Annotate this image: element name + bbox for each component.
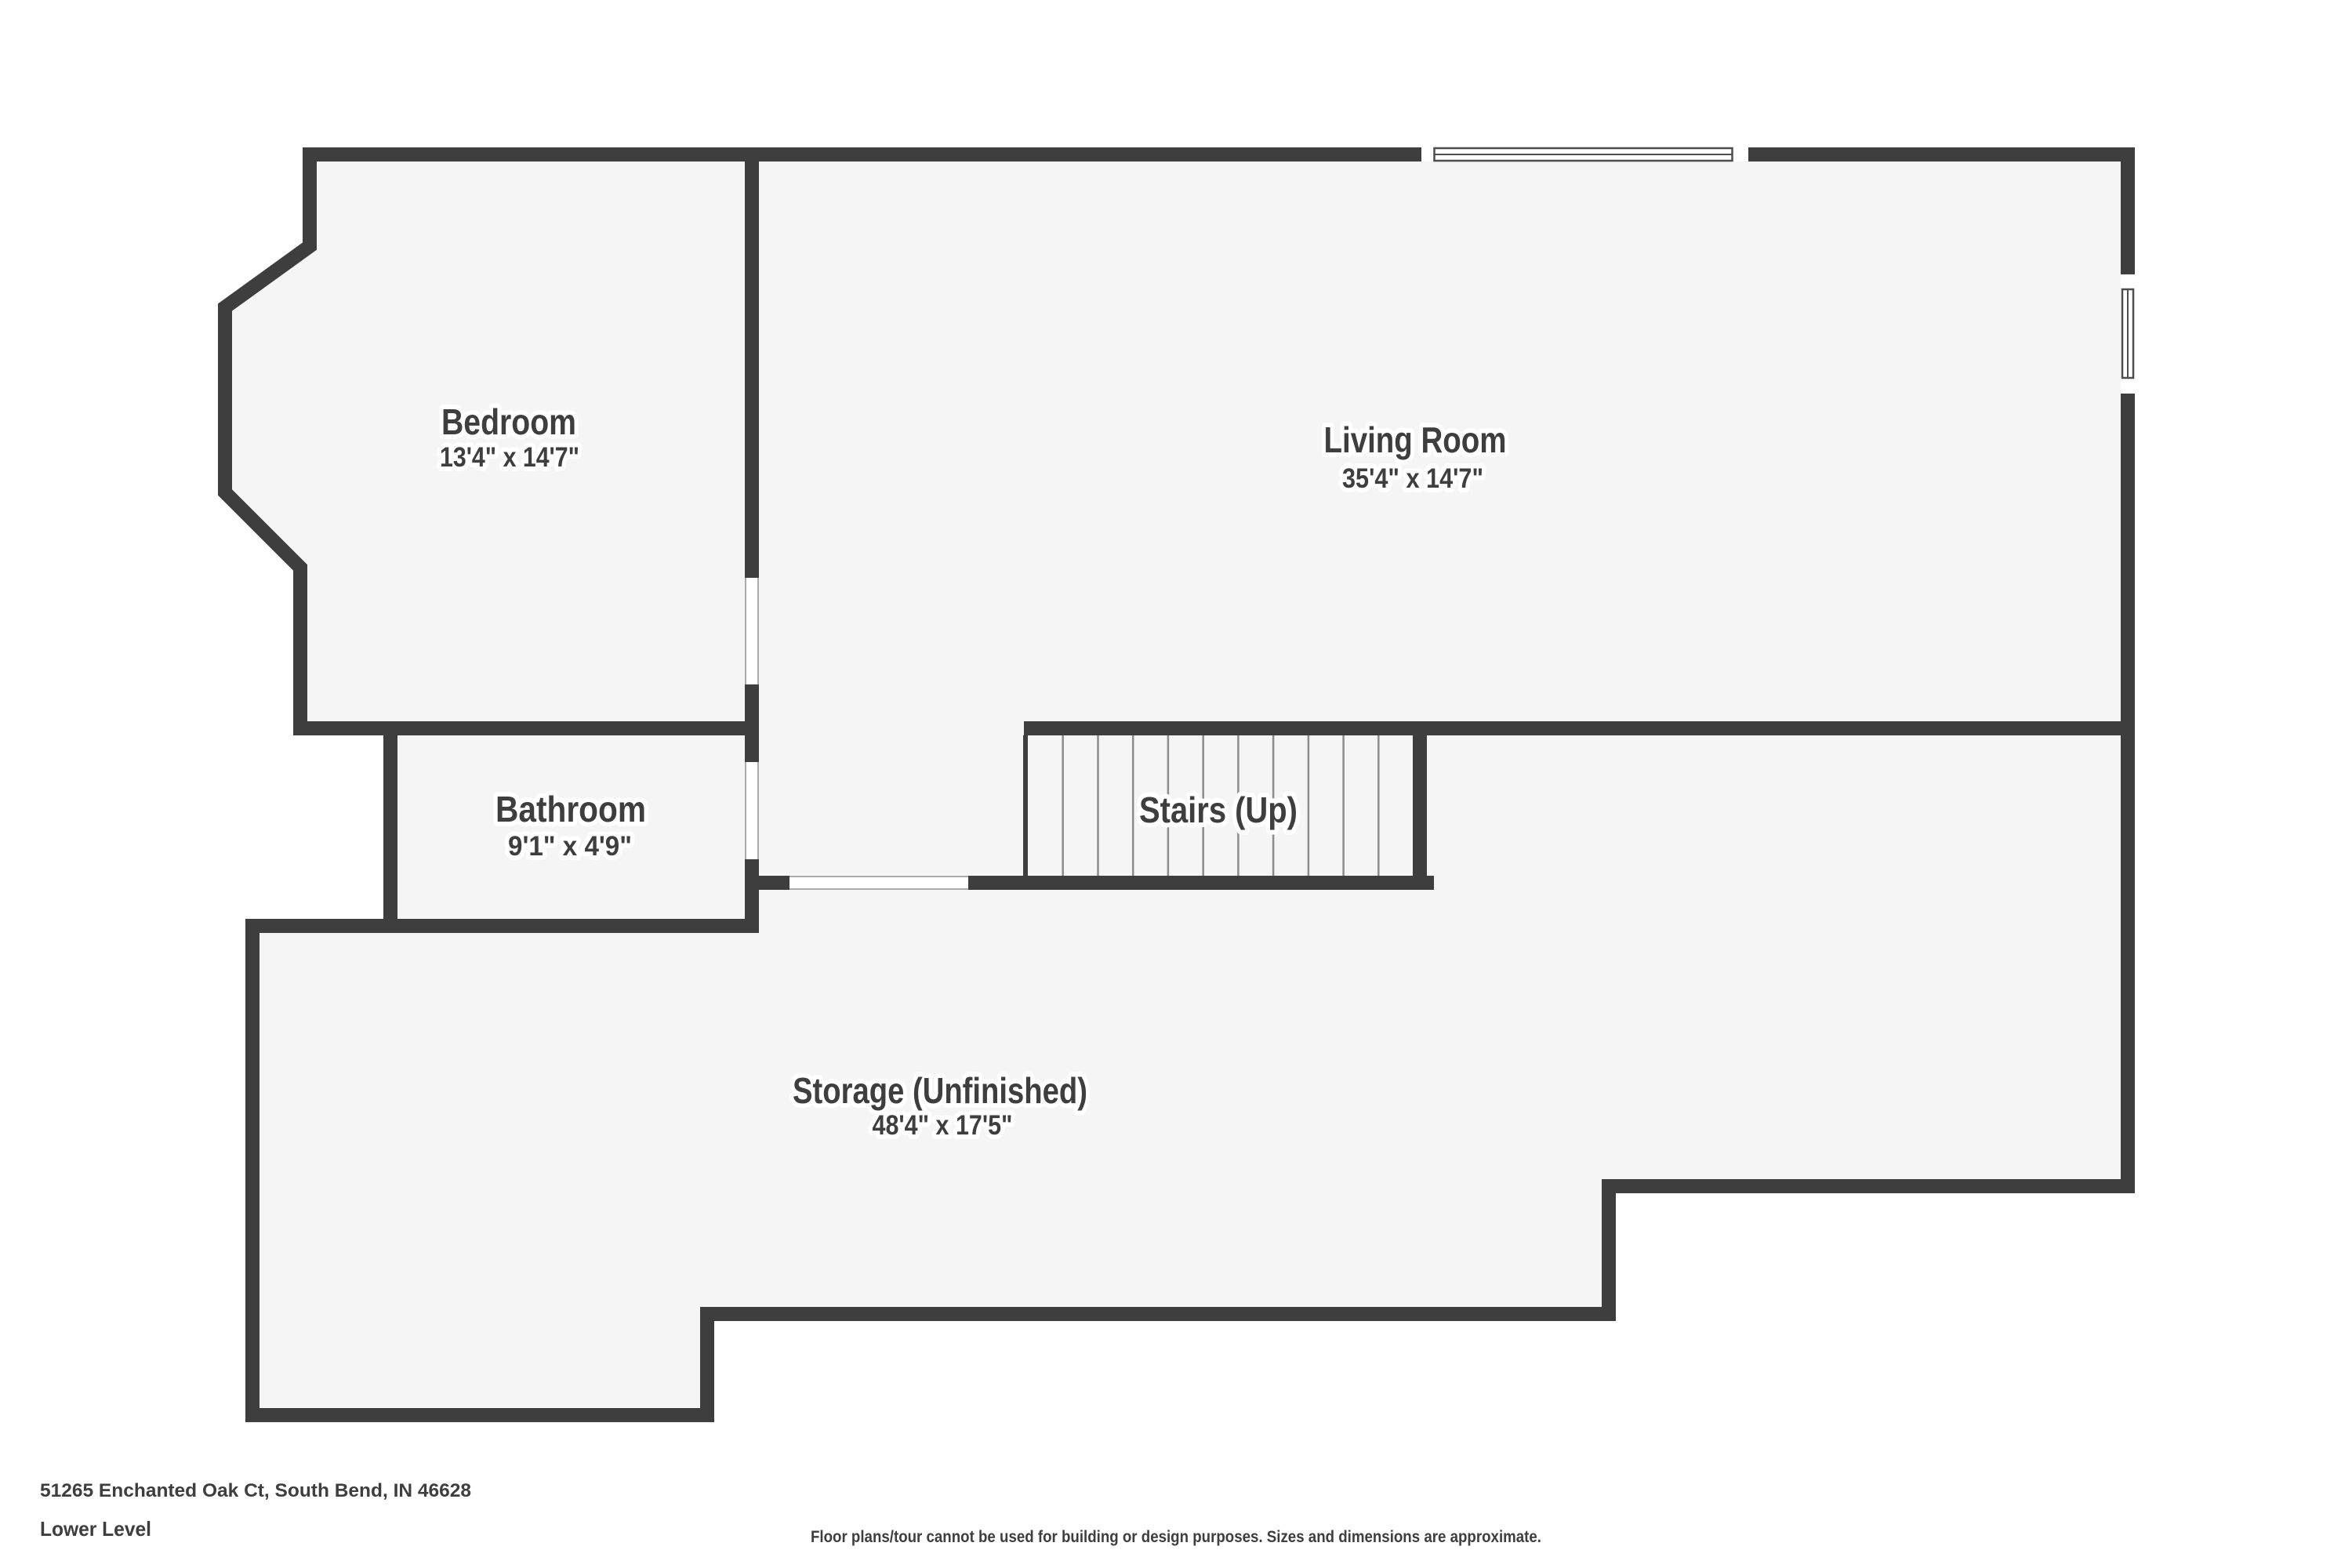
- svg-text:Bathroom: Bathroom: [495, 789, 646, 829]
- svg-text:51265 Enchanted Oak Ct, South: 51265 Enchanted Oak Ct, South Bend, IN 4…: [40, 1480, 471, 1501]
- svg-text:Storage (Unfinished): Storage (Unfinished): [793, 1070, 1087, 1111]
- svg-text:Living Room: Living Room: [1324, 419, 1507, 460]
- svg-text:Stairs (Up): Stairs (Up): [1139, 789, 1298, 830]
- svg-text:9'1" x 4'9": 9'1" x 4'9": [508, 831, 632, 862]
- svg-text:Lower Level: Lower Level: [40, 1517, 151, 1541]
- svg-text:13'4" x 14'7": 13'4" x 14'7": [440, 442, 579, 473]
- svg-text:48'4" x 17'5": 48'4" x 17'5": [873, 1110, 1013, 1141]
- svg-text:35'4" x 14'7": 35'4" x 14'7": [1342, 463, 1483, 494]
- svg-text:Floor plans/tour cannot be use: Floor plans/tour cannot be used for buil…: [811, 1528, 1541, 1546]
- svg-text:Bedroom: Bedroom: [441, 401, 576, 442]
